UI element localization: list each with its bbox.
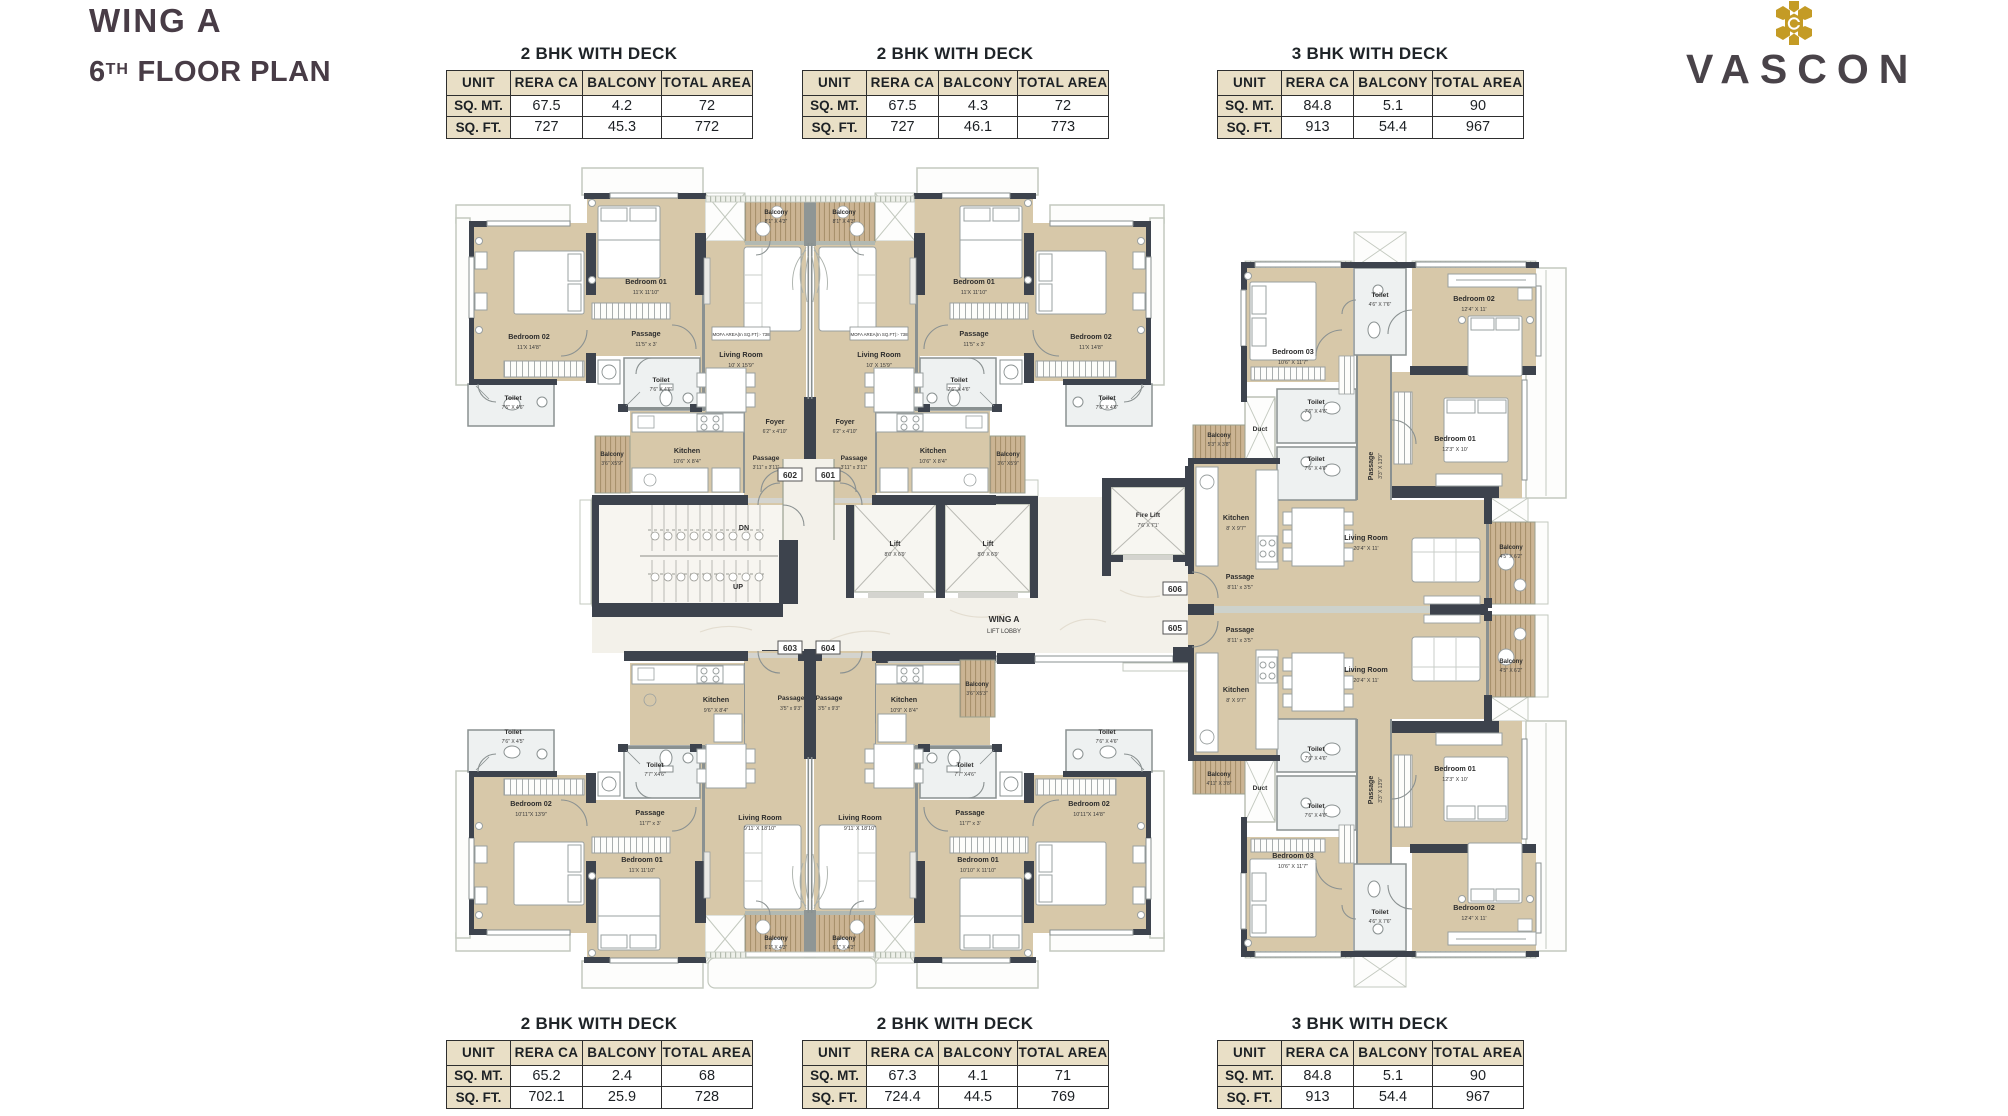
svg-text:6'1" X 4'3": 6'1" X 4'3" [833, 945, 856, 951]
svg-text:11'5" x 3': 11'5" x 3' [963, 342, 984, 348]
svg-text:Living Room: Living Room [838, 813, 882, 822]
svg-text:Duct: Duct [1253, 785, 1268, 792]
svg-text:Lift: Lift [890, 541, 902, 548]
svg-text:10'6" X 8'4": 10'6" X 8'4" [673, 459, 701, 465]
svg-text:Passage: Passage [753, 455, 780, 462]
svg-text:Toilet: Toilet [1371, 909, 1389, 916]
svg-text:606: 606 [1168, 584, 1182, 594]
svg-text:Living Room: Living Room [1344, 665, 1388, 674]
svg-text:Bedroom 02: Bedroom 02 [1068, 799, 1110, 808]
svg-text:7'7" X4'6": 7'7" X4'6" [954, 772, 976, 778]
svg-text:Balcony: Balcony [832, 210, 856, 216]
svg-text:Lift: Lift [983, 541, 995, 548]
svg-text:Bedroom 01: Bedroom 01 [957, 855, 999, 864]
svg-text:3'5" x 9'3": 3'5" x 9'3" [818, 706, 840, 712]
svg-text:20'4" X 11': 20'4" X 11' [1353, 546, 1378, 552]
svg-text:8'11' x 3'5": 8'11' x 3'5" [1227, 585, 1252, 591]
svg-text:Passage: Passage [635, 808, 664, 817]
svg-text:4'6" X 7'6": 4'6" X 7'6" [1369, 919, 1392, 925]
svg-text:7'6' X 7'1': 7'6' X 7'1' [1137, 523, 1158, 529]
svg-text:Passage: Passage [1368, 452, 1375, 481]
svg-text:10'10" X 11'10": 10'10" X 11'10" [960, 868, 996, 874]
svg-text:Bedroom 02: Bedroom 02 [508, 332, 550, 341]
svg-text:3'6" X5'9": 3'6" X5'9" [997, 461, 1019, 467]
svg-text:Bedroom 01: Bedroom 01 [1434, 434, 1476, 443]
svg-text:12'3" X 10': 12'3" X 10' [1442, 777, 1468, 783]
svg-text:Toilet: Toilet [1307, 399, 1325, 406]
svg-text:DN: DN [739, 523, 749, 532]
svg-text:Living Room: Living Room [1344, 533, 1388, 542]
svg-text:Toilet: Toilet [1307, 803, 1325, 810]
svg-text:10'11"X 13'9": 10'11"X 13'9" [515, 812, 547, 818]
svg-text:7'6" X 4'6": 7'6" X 4'6" [1305, 409, 1328, 415]
svg-text:3'6" X5'9": 3'6" X5'9" [601, 461, 623, 467]
svg-text:Toilet: Toilet [504, 729, 522, 736]
svg-text:Passage: Passage [778, 695, 805, 702]
svg-text:3'6" X5'3": 3'6" X5'3" [966, 691, 988, 697]
svg-text:Bedroom 02: Bedroom 02 [1070, 332, 1112, 341]
svg-text:Passage: Passage [955, 808, 984, 817]
svg-text:Living Room: Living Room [738, 813, 782, 822]
svg-text:5'3" X 3'8": 5'3" X 3'8" [1208, 442, 1231, 448]
svg-text:12'4" X 11': 12'4" X 11' [1461, 307, 1486, 313]
svg-text:Toilet: Toilet [950, 377, 968, 384]
svg-text:Foyer: Foyer [835, 419, 854, 426]
svg-text:Foyer: Foyer [765, 419, 784, 426]
svg-text:Fire Lift: Fire Lift [1136, 512, 1161, 519]
svg-text:Balcony: Balcony [1499, 659, 1523, 665]
svg-text:Bedroom 02: Bedroom 02 [1453, 294, 1495, 303]
svg-text:Passage: Passage [841, 455, 868, 462]
svg-text:10' X 15'9": 10' X 15'9" [728, 363, 754, 369]
svg-text:11'X 11'10": 11'X 11'10" [629, 868, 655, 874]
svg-text:10' X 15'9": 10' X 15'9" [866, 363, 892, 369]
svg-text:7'6" X 4'6": 7'6" X 4'6" [650, 387, 673, 393]
svg-text:11'X 11'10": 11'X 11'10" [961, 290, 987, 296]
svg-text:604: 604 [821, 643, 835, 653]
svg-text:Balcony: Balcony [996, 452, 1020, 458]
svg-text:Toilet: Toilet [504, 395, 522, 402]
svg-text:9'6" X 8'4": 9'6" X 8'4" [704, 708, 729, 714]
svg-text:Bedroom 01: Bedroom 01 [953, 277, 995, 286]
svg-text:Balcony: Balcony [600, 452, 624, 458]
svg-text:Kitchen: Kitchen [703, 695, 729, 704]
svg-text:Passage: Passage [1226, 574, 1255, 581]
svg-text:9'11' X 18'10": 9'11' X 18'10" [744, 826, 776, 832]
svg-text:Toilet: Toilet [652, 377, 670, 384]
svg-text:7'6" X 4'6": 7'6" X 4'6" [1305, 813, 1328, 819]
svg-text:Passage: Passage [1368, 776, 1375, 805]
svg-text:Balcony: Balcony [764, 210, 788, 216]
svg-text:603: 603 [783, 643, 797, 653]
svg-text:7'6" X 4'5": 7'6" X 4'5" [502, 739, 525, 745]
svg-text:Kitchen: Kitchen [891, 695, 917, 704]
svg-text:Balcony: Balcony [965, 682, 989, 688]
svg-text:Toilet: Toilet [1098, 395, 1116, 402]
svg-text:6'2" x 4'10": 6'2" x 4'10" [833, 429, 858, 435]
svg-text:4'5" X 6'2": 4'5" X 6'2" [1500, 668, 1523, 674]
svg-text:Passage: Passage [631, 329, 660, 338]
svg-text:3'11" x 3'11": 3'11" x 3'11" [841, 465, 868, 471]
svg-text:Toilet: Toilet [1307, 746, 1325, 753]
svg-text:Duct: Duct [1253, 426, 1268, 433]
svg-text:Balcony: Balcony [1207, 772, 1231, 778]
svg-text:11'X 11'10": 11'X 11'10" [633, 290, 659, 296]
svg-text:Bedroom 02: Bedroom 02 [1453, 903, 1495, 912]
svg-text:3'5" x 9'3": 3'5" x 9'3" [780, 706, 802, 712]
svg-text:Bedroom 01: Bedroom 01 [1434, 764, 1476, 773]
svg-text:8'1" X 4'3": 8'1" X 4'3" [833, 219, 856, 225]
svg-text:10'6" X 11'7": 10'6" X 11'7" [1278, 360, 1308, 366]
svg-text:3'11" x 3'11": 3'11" x 3'11" [753, 465, 780, 471]
svg-text:11'7" x 3': 11'7" x 3' [639, 821, 660, 827]
svg-text:Balcony: Balcony [764, 936, 788, 942]
svg-text:Bedroom 02: Bedroom 02 [510, 799, 552, 808]
svg-text:Kitchen: Kitchen [1223, 685, 1249, 694]
svg-text:8'0' X 6'9': 8'0' X 6'9' [977, 552, 998, 558]
svg-text:Kitchen: Kitchen [920, 446, 946, 455]
svg-text:8'0' X 6'9': 8'0' X 6'9' [884, 552, 905, 558]
svg-text:12'4" X 11': 12'4" X 11' [1461, 916, 1486, 922]
svg-text:Bedroom 01: Bedroom 01 [625, 277, 667, 286]
svg-text:11'X 14'8": 11'X 14'8" [1079, 345, 1103, 351]
svg-text:605: 605 [1168, 623, 1182, 633]
svg-text:4'5" X 6'2": 4'5" X 6'2" [1500, 554, 1523, 560]
svg-text:Bedroom 03: Bedroom 03 [1272, 851, 1314, 860]
svg-text:601: 601 [821, 470, 835, 480]
svg-text:Toilet: Toilet [1307, 456, 1325, 463]
svg-text:Balcony: Balcony [1499, 545, 1523, 551]
svg-text:602: 602 [783, 470, 797, 480]
svg-text:8' X 9'7": 8' X 9'7" [1226, 526, 1246, 532]
svg-text:12'3" X 10': 12'3" X 10' [1442, 447, 1468, 453]
svg-text:7'6" X 4'6": 7'6" X 4'6" [502, 405, 525, 411]
svg-text:8'1" X 4'3": 8'1" X 4'3" [765, 219, 788, 225]
svg-text:11'5" x 3': 11'5" x 3' [635, 342, 656, 348]
svg-text:Living Room: Living Room [719, 350, 763, 359]
svg-text:9'11' X 18'10": 9'11' X 18'10" [844, 826, 876, 832]
svg-text:10'6" X 11'7": 10'6" X 11'7" [1278, 864, 1308, 870]
svg-text:6'2" x 4'10": 6'2" x 4'10" [763, 429, 788, 435]
svg-text:7'6" X 4'6": 7'6" X 4'6" [1096, 739, 1119, 745]
svg-text:Balcony: Balcony [832, 936, 856, 942]
svg-text:4'11" X 3'8": 4'11" X 3'8" [1206, 781, 1231, 787]
svg-text:Passage: Passage [1226, 627, 1255, 634]
svg-text:8'11' x 3'5": 8'11' x 3'5" [1227, 638, 1252, 644]
svg-text:11'7" x 3': 11'7" x 3' [959, 821, 980, 827]
svg-text:Bedroom 01: Bedroom 01 [621, 855, 663, 864]
svg-text:Bedroom 03: Bedroom 03 [1272, 347, 1314, 356]
svg-text:WING A: WING A [989, 614, 1020, 624]
svg-text:MOFA AREA(In SQ.FT):- 738: MOFA AREA(In SQ.FT):- 738 [850, 332, 908, 337]
svg-text:7'6" X 4'6": 7'6" X 4'6" [948, 387, 971, 393]
svg-text:Toilet: Toilet [1098, 729, 1116, 736]
svg-text:Toilet: Toilet [956, 762, 974, 769]
svg-text:7'7" X4'6": 7'7" X4'6" [644, 772, 666, 778]
svg-text:Living Room: Living Room [857, 350, 901, 359]
svg-text:7'6" X 4'6": 7'6" X 4'6" [1305, 466, 1328, 472]
svg-text:8' X 9'7": 8' X 9'7" [1226, 698, 1246, 704]
svg-text:UP: UP [733, 582, 743, 591]
svg-text:7'6" X 4'6": 7'6" X 4'6" [1096, 405, 1119, 411]
svg-text:Passage: Passage [959, 329, 988, 338]
svg-text:LIFT LOBBY: LIFT LOBBY [987, 629, 1021, 635]
svg-text:Kitchen: Kitchen [674, 446, 700, 455]
svg-text:20'4" X 11': 20'4" X 11' [1353, 678, 1378, 684]
svg-text:Passage: Passage [816, 695, 843, 702]
svg-text:Toilet: Toilet [646, 762, 664, 769]
svg-text:MOFA AREA(In SQ.FT):- 738: MOFA AREA(In SQ.FT):- 738 [712, 332, 770, 337]
svg-text:11'X 14'8": 11'X 14'8" [517, 345, 541, 351]
svg-text:3'3" X 13'9": 3'3" X 13'9" [1378, 453, 1384, 479]
svg-text:Balcony: Balcony [1207, 433, 1231, 439]
svg-text:3'3" X 13'9": 3'3" X 13'9" [1378, 777, 1384, 803]
svg-text:10'9" X 8'4": 10'9" X 8'4" [890, 708, 918, 714]
svg-text:4'6" X 7'6": 4'6" X 7'6" [1369, 302, 1392, 308]
svg-text:Toilet: Toilet [1371, 292, 1389, 299]
svg-text:10'11"X 14'8": 10'11"X 14'8" [1073, 812, 1105, 818]
svg-text:10'6" X 8'4": 10'6" X 8'4" [919, 459, 947, 465]
svg-text:7'6" X 4'6": 7'6" X 4'6" [1305, 756, 1328, 762]
svg-text:Kitchen: Kitchen [1223, 513, 1249, 522]
svg-text:6'1" X 4'3": 6'1" X 4'3" [765, 945, 788, 951]
